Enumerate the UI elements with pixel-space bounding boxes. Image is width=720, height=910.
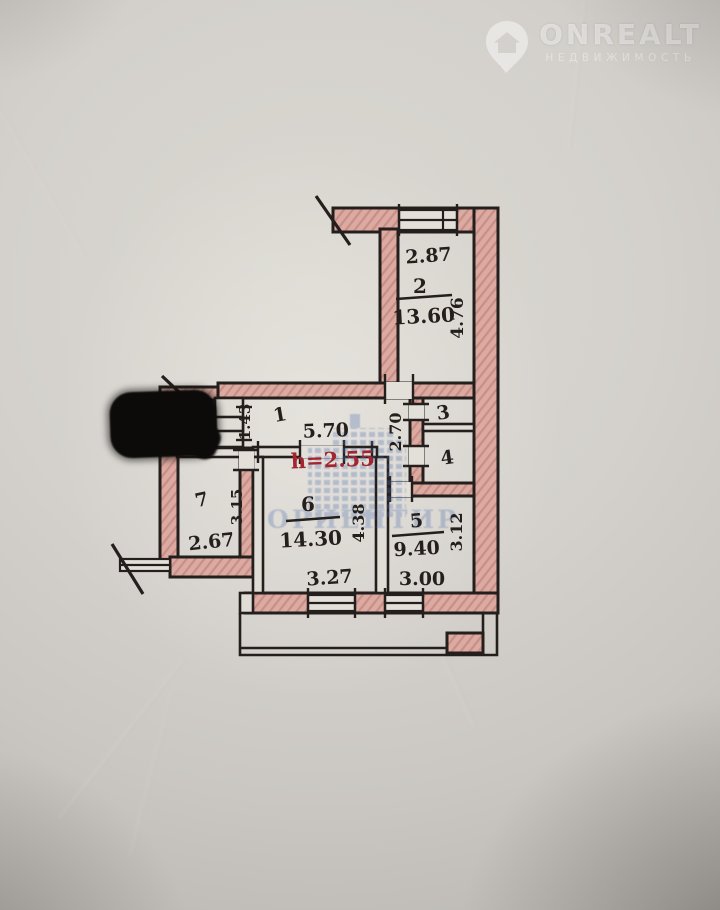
onrealt-logo: ONREALT НЕДВИЖИМОСТЬ <box>483 20 702 76</box>
room5-depth-label: 3.12 <box>447 513 466 552</box>
onrealt-subtitle-text: НЕДВИЖИМОСТЬ <box>545 52 695 64</box>
room2-area-label: 13.60 <box>392 302 456 329</box>
room7-number-label: 7 <box>193 488 211 512</box>
room1-width-label: 1.43 <box>236 404 254 441</box>
room2-depth-label: 4.76 <box>448 297 468 338</box>
room1-number-label: 1 <box>272 403 289 427</box>
floor-plan-photo: ОРИЕНТИР 2.87 2 13.60 4.76 1 5.70 1.43 h… <box>0 0 720 910</box>
room7-width-label: 2.67 <box>187 529 235 556</box>
room6-width-label: 3.27 <box>306 565 354 590</box>
room3-number-label: 3 <box>435 401 451 425</box>
room2-width-label: 2.87 <box>405 243 453 268</box>
ceiling-height-note: h=2.55 <box>290 446 375 474</box>
floor-plan-drawing: ОРИЕНТИР 2.87 2 13.60 4.76 1 5.70 1.43 h… <box>0 0 720 910</box>
room1-length-label: 5.70 <box>302 419 349 443</box>
onrealt-brand-text: ONREALT <box>539 20 702 50</box>
room5-number-label: 5 <box>409 509 424 532</box>
watermark-building-antenna <box>350 414 360 428</box>
room6-area-label: 14.30 <box>279 525 343 552</box>
room2-number-label: 2 <box>413 274 427 298</box>
room7-depth-label: 3.15 <box>228 489 246 526</box>
room6-depth-label: 4.38 <box>349 504 368 543</box>
passage-depth-label: 2.70 <box>386 413 405 452</box>
room6-number-label: 6 <box>301 492 315 516</box>
room5-width-label: 3.00 <box>399 568 445 590</box>
onrealt-pin-house-icon <box>483 20 531 76</box>
room5-area-label: 9.40 <box>393 537 440 561</box>
room4-number-label: 4 <box>439 446 455 470</box>
